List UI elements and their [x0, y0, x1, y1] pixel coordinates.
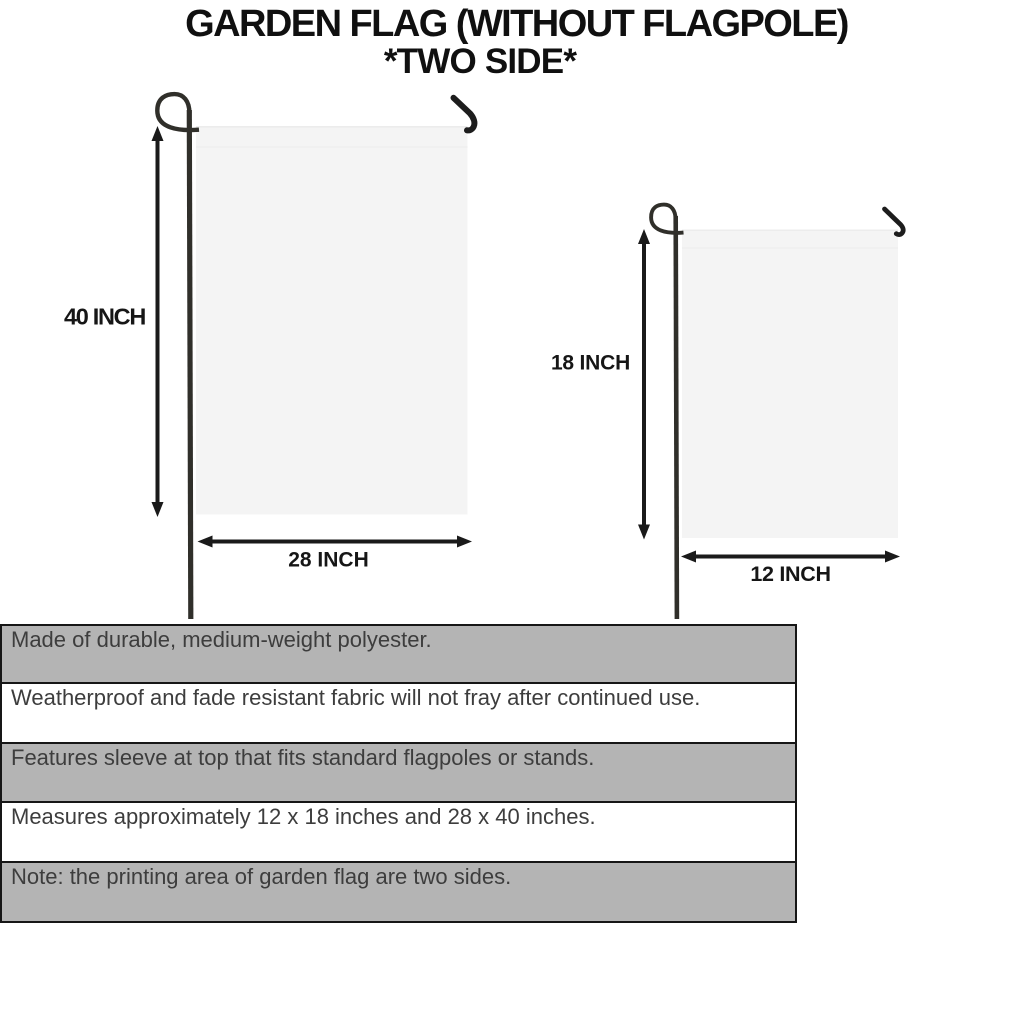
svg-text:18 INCH: 18 INCH — [551, 352, 630, 375]
svg-text:28 INCH: 28 INCH — [288, 549, 369, 572]
svg-text:12 INCH: 12 INCH — [750, 562, 830, 586]
svg-text:40 INCH: 40 INCH — [64, 304, 145, 330]
